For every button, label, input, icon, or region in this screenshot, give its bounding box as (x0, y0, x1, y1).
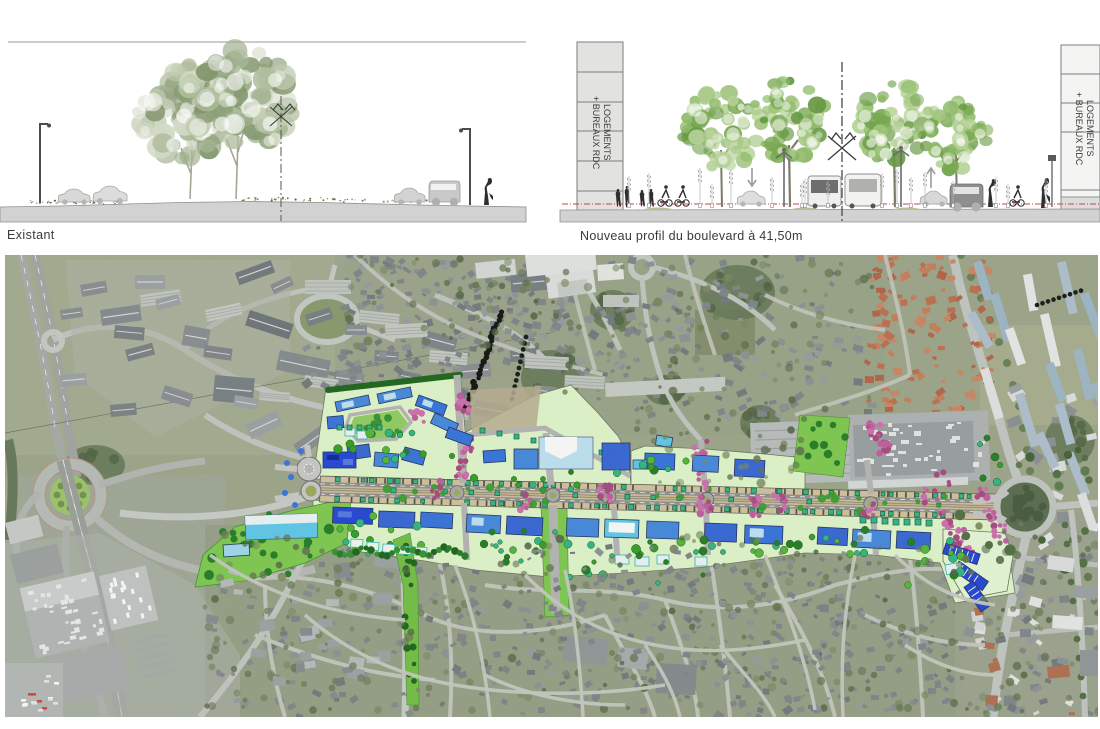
svg-text:+ BUREAUX RDC: + BUREAUX RDC (1074, 92, 1084, 166)
svg-text:LOGEMENTS: LOGEMENTS (602, 104, 612, 161)
svg-text:Existant: Existant (7, 228, 55, 242)
svg-text:Nouveau profil du boulevard à: Nouveau profil du boulevard à 41,50m (580, 229, 803, 243)
svg-text:LOGEMENTS: LOGEMENTS (1085, 100, 1095, 157)
svg-text:+ BUREAUX RDC: + BUREAUX RDC (591, 96, 601, 170)
